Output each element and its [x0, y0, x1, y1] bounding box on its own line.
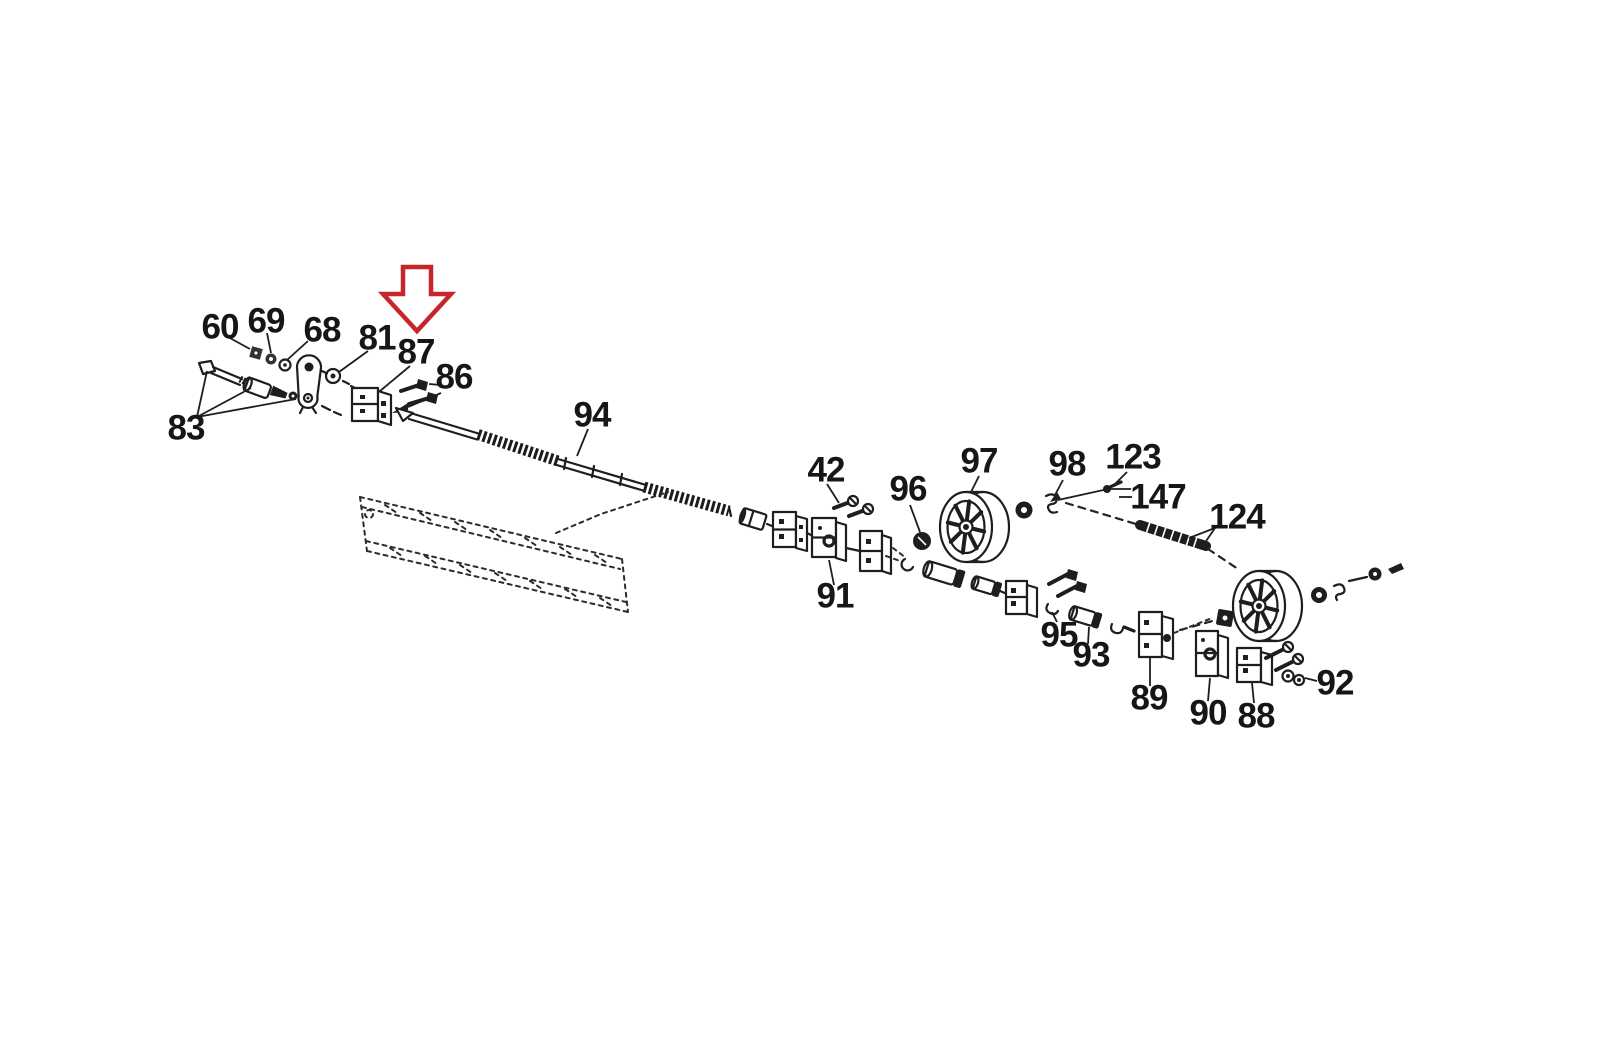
screws-42 [834, 496, 873, 516]
cone-bushing [270, 386, 288, 401]
bracket-c-bolts [1049, 569, 1087, 596]
washer-81 [326, 369, 340, 383]
c-clip [902, 559, 913, 570]
washer-dark [266, 354, 277, 365]
lever-arm [297, 355, 321, 413]
leader-line-96 [910, 505, 920, 532]
part-label-60: 60 [202, 308, 239, 347]
wheel-2-drawing [1180, 563, 1404, 641]
leader-line-92 [1305, 678, 1317, 681]
lock-nut-96 [913, 532, 931, 550]
part-label-97: 97 [961, 442, 998, 481]
parts-diagram-canvas: 6069688187868394429196979812314712495938… [0, 0, 1600, 1043]
u-clip [1111, 624, 1123, 633]
lever-assembly-drawing [199, 346, 357, 415]
bushing-small [970, 575, 1003, 598]
part-label-90: 90 [1190, 694, 1227, 733]
retainer-clip [1334, 584, 1345, 600]
shaft-94-drawing [396, 408, 731, 516]
bushing-large [921, 559, 965, 588]
part-label-94: 94 [574, 396, 612, 435]
beam-to-shaft-dashed-leader [556, 492, 668, 533]
part-label-87: 87 [398, 333, 435, 372]
part-label-68: 68 [304, 311, 341, 350]
washer-outline [280, 360, 291, 371]
bracket-88 [1237, 648, 1272, 685]
threaded-section [478, 435, 558, 462]
part-label-92: 92 [1317, 664, 1354, 703]
part-label-89: 89 [1131, 679, 1168, 718]
mount-bracket-87-drawing [352, 388, 391, 425]
bracket-c [1006, 581, 1037, 617]
part-label-91: 91 [817, 577, 854, 616]
nut-92 [1283, 671, 1305, 686]
coupling-nut [737, 507, 767, 530]
small-nut-hole [292, 395, 295, 398]
threaded-section [644, 487, 729, 511]
square-nut [249, 346, 262, 359]
leader-line-83 [197, 399, 296, 417]
part-label-81: 81 [359, 319, 396, 358]
clamp-block-a [773, 512, 807, 551]
part-label-123: 123 [1105, 438, 1161, 477]
screw-123 [1103, 482, 1121, 493]
part-label-96: 96 [890, 470, 927, 509]
callout-layer: 6069688187868394429196979812314712495938… [168, 267, 1354, 736]
axle-parts-98-drawing [1016, 482, 1132, 519]
part-label-124: 124 [1209, 498, 1266, 537]
wheel-97-drawing [940, 492, 1009, 562]
part-label-93: 93 [1073, 636, 1110, 675]
beam-hatching [385, 505, 612, 606]
part-label-98: 98 [1049, 445, 1086, 484]
part-label-42: 42 [808, 451, 845, 490]
bracket-89 [1139, 612, 1173, 659]
square-axle-nut [1216, 609, 1235, 628]
part-label-69: 69 [248, 302, 285, 341]
clamp-block-91 [812, 518, 846, 561]
cable-147-line [1058, 489, 1131, 500]
clamp-block-b [860, 531, 891, 574]
part-label-86: 86 [436, 358, 473, 397]
bracket-90 [1196, 631, 1228, 678]
part-label-83: 83 [168, 409, 205, 448]
spacer-cylinder [242, 376, 272, 398]
exploded-diagram: 6069688187868394429196979812314712495938… [0, 0, 1600, 1043]
bolt-head [416, 379, 428, 391]
frame-beam-hidden-drawing [360, 492, 668, 612]
part-label-147: 147 [1130, 478, 1185, 517]
part-label-88: 88 [1238, 697, 1275, 736]
cone-pin [1388, 563, 1404, 574]
